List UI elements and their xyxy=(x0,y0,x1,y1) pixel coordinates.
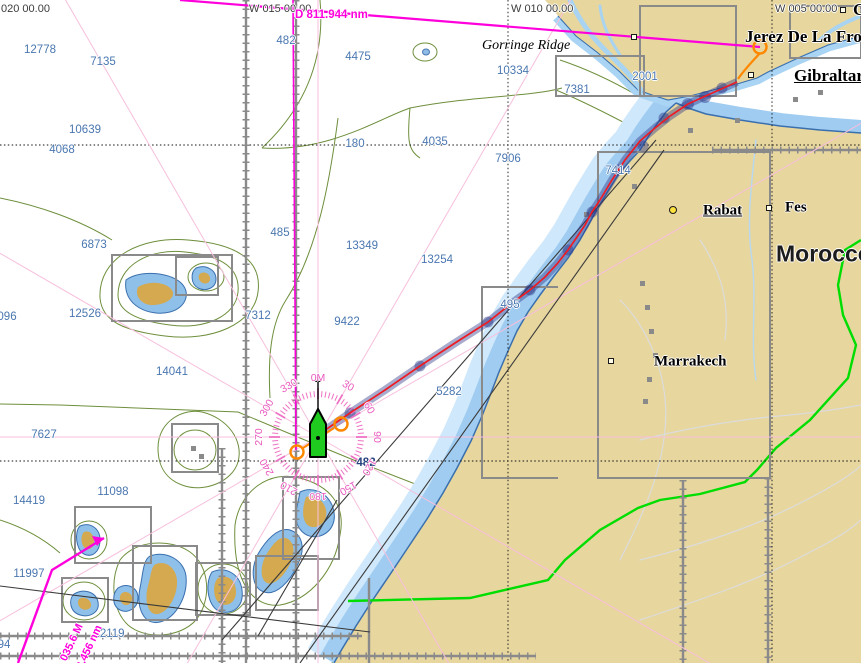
chart-canvas xyxy=(0,0,861,663)
ship-symbol xyxy=(310,409,326,457)
ship-position-dot xyxy=(316,436,320,440)
heading-arrow xyxy=(315,375,321,382)
chart-viewport[interactable]: 1277871351063940686873125260967312140417… xyxy=(0,0,861,663)
own-ship[interactable] xyxy=(310,375,326,457)
